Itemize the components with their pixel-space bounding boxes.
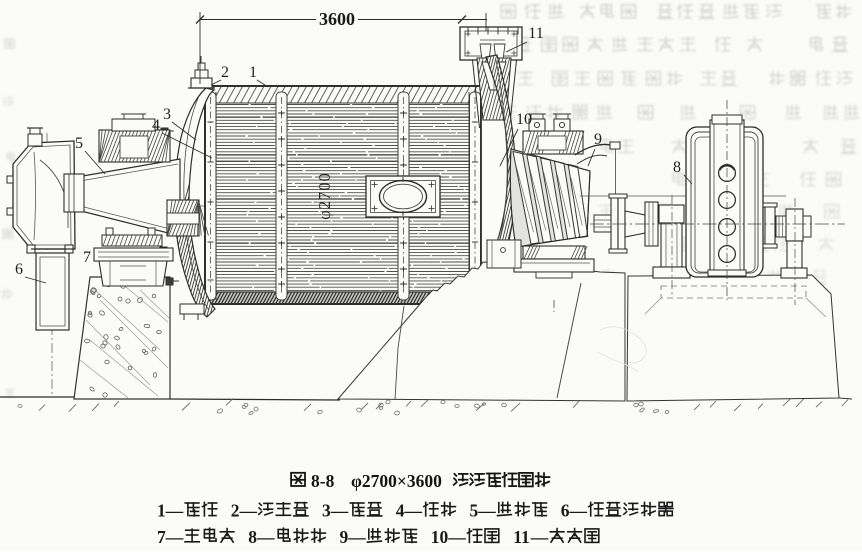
svg-text:—: —: [477, 501, 496, 521]
svg-text:—: —: [165, 527, 184, 547]
svg-text:4: 4: [152, 117, 160, 134]
svg-text:—: —: [569, 501, 588, 521]
svg-text:—: —: [347, 527, 366, 547]
svg-text:10: 10: [431, 527, 449, 547]
svg-text:3: 3: [163, 106, 171, 123]
svg-text:11: 11: [513, 527, 530, 547]
svg-text:7: 7: [83, 249, 91, 266]
svg-text:9: 9: [594, 131, 602, 148]
svg-text:—: —: [330, 501, 349, 521]
svg-text:3: 3: [322, 501, 331, 521]
svg-text:—: —: [239, 501, 258, 521]
svg-text:3600: 3600: [319, 9, 355, 29]
svg-text:φ2700: φ2700: [315, 172, 334, 220]
svg-text:10: 10: [516, 111, 532, 128]
svg-text:1: 1: [249, 64, 257, 81]
svg-text:—: —: [165, 501, 184, 521]
svg-text:1: 1: [157, 501, 166, 521]
svg-text:φ2700×3600: φ2700×3600: [351, 471, 442, 491]
svg-text:5: 5: [75, 135, 83, 152]
svg-text:7: 7: [157, 527, 166, 547]
svg-text:8-8: 8-8: [311, 471, 335, 491]
svg-text:—: —: [404, 501, 423, 521]
svg-text:11: 11: [528, 25, 543, 42]
svg-text:8: 8: [248, 527, 257, 547]
svg-text:2: 2: [221, 64, 229, 81]
svg-text:—: —: [447, 527, 466, 547]
svg-text:6: 6: [561, 501, 570, 521]
svg-text:6: 6: [15, 261, 23, 278]
svg-text:—: —: [530, 527, 549, 547]
svg-text:2: 2: [231, 501, 240, 521]
svg-text:—: —: [256, 527, 275, 547]
svg-text:8: 8: [673, 159, 681, 176]
svg-text:5: 5: [470, 501, 479, 521]
svg-text:9: 9: [340, 527, 349, 547]
svg-text:4: 4: [396, 501, 405, 521]
